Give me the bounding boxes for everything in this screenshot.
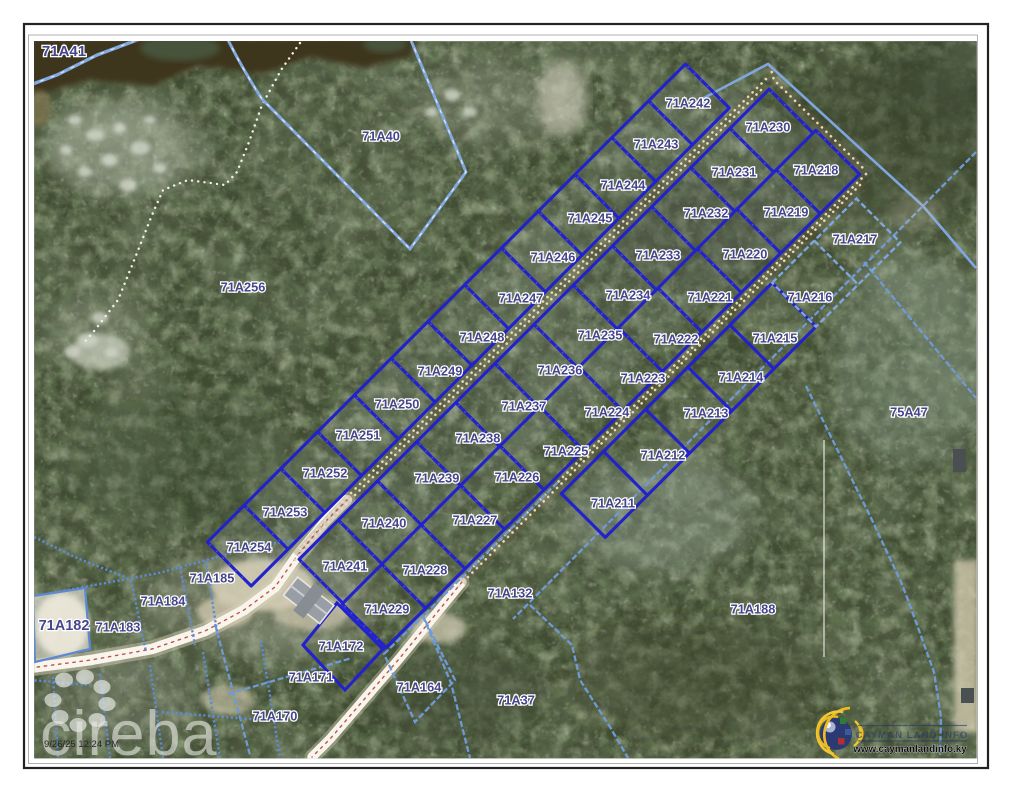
- svg-text:71A254: 71A254: [227, 540, 273, 555]
- svg-text:71A248: 71A248: [460, 330, 505, 345]
- svg-text:71A40: 71A40: [362, 129, 400, 144]
- svg-text:71A227: 71A227: [453, 513, 498, 528]
- svg-text:71A172: 71A172: [319, 639, 364, 654]
- svg-text:71A218: 71A218: [794, 163, 839, 178]
- svg-text:71A235: 71A235: [578, 328, 623, 343]
- svg-text:71A252: 71A252: [303, 466, 348, 481]
- svg-text:71A242: 71A242: [666, 96, 711, 111]
- svg-text:71A246: 71A246: [531, 250, 576, 265]
- svg-text:71A237: 71A237: [502, 399, 547, 414]
- svg-text:71A250: 71A250: [375, 397, 420, 412]
- svg-text:71A171: 71A171: [289, 670, 334, 685]
- svg-text:71A170: 71A170: [253, 709, 298, 724]
- svg-text:75A47: 75A47: [890, 405, 928, 420]
- svg-text:71A164: 71A164: [397, 680, 443, 695]
- svg-text:71A249: 71A249: [418, 364, 463, 379]
- svg-text:71A41: 71A41: [42, 43, 86, 60]
- svg-text:71A233: 71A233: [636, 248, 681, 263]
- svg-text:71A247: 71A247: [499, 291, 544, 306]
- svg-text:71A234: 71A234: [606, 288, 652, 303]
- svg-text:71A215: 71A215: [753, 331, 798, 346]
- svg-text:71A245: 71A245: [568, 211, 613, 226]
- svg-text:71A132: 71A132: [488, 586, 533, 601]
- svg-text:CAYMAN LAND INFO: CAYMAN LAND INFO: [856, 730, 969, 741]
- svg-text:71A223: 71A223: [621, 371, 666, 386]
- svg-text:71A240: 71A240: [362, 516, 407, 531]
- svg-text:71A224: 71A224: [585, 405, 631, 420]
- svg-text:71A211: 71A211: [591, 496, 635, 511]
- svg-text:71A241: 71A241: [323, 559, 368, 574]
- svg-text:71A244: 71A244: [601, 178, 647, 193]
- svg-text:71A239: 71A239: [415, 471, 460, 486]
- svg-text:71A232: 71A232: [684, 206, 729, 221]
- svg-text:71A228: 71A228: [403, 563, 448, 578]
- svg-text:71A214: 71A214: [719, 370, 765, 385]
- svg-text:71A236: 71A236: [538, 363, 583, 378]
- svg-text:71A238: 71A238: [456, 431, 501, 446]
- svg-text:71A221: 71A221: [688, 290, 733, 305]
- svg-text:71A243: 71A243: [634, 137, 679, 152]
- svg-text:71A183: 71A183: [96, 620, 141, 635]
- svg-text:71A222: 71A222: [654, 332, 699, 347]
- svg-text:71A229: 71A229: [365, 602, 410, 617]
- svg-text:71A251: 71A251: [336, 428, 381, 443]
- svg-text:71A226: 71A226: [495, 470, 540, 485]
- svg-text:71A220: 71A220: [723, 247, 768, 262]
- svg-text:71A182: 71A182: [39, 618, 90, 634]
- svg-text:71A37: 71A37: [497, 693, 535, 708]
- svg-text:9/26/25 12:24 PM: 9/26/25 12:24 PM: [44, 739, 119, 750]
- svg-text:www.caymanlandinfo.ky: www.caymanlandinfo.ky: [852, 744, 967, 755]
- svg-text:71A225: 71A225: [544, 444, 589, 459]
- svg-text:71A219: 71A219: [764, 205, 809, 220]
- svg-text:71A217: 71A217: [833, 232, 878, 247]
- svg-text:71A188: 71A188: [731, 602, 776, 617]
- svg-text:71A256: 71A256: [221, 280, 266, 295]
- svg-text:71A184: 71A184: [141, 594, 187, 609]
- svg-text:71A231: 71A231: [712, 165, 757, 180]
- svg-text:71A230: 71A230: [746, 120, 791, 135]
- svg-text:71A212: 71A212: [641, 448, 686, 463]
- svg-text:71A253: 71A253: [263, 505, 308, 520]
- svg-text:71A213: 71A213: [684, 406, 729, 421]
- svg-text:71A185: 71A185: [190, 571, 235, 586]
- svg-text:71A216: 71A216: [788, 290, 833, 305]
